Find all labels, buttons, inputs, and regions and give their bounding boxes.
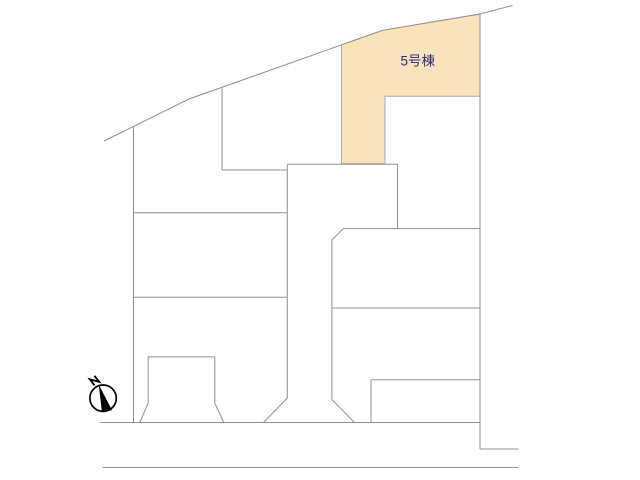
- svg-text:5号棟: 5号棟: [401, 54, 436, 69]
